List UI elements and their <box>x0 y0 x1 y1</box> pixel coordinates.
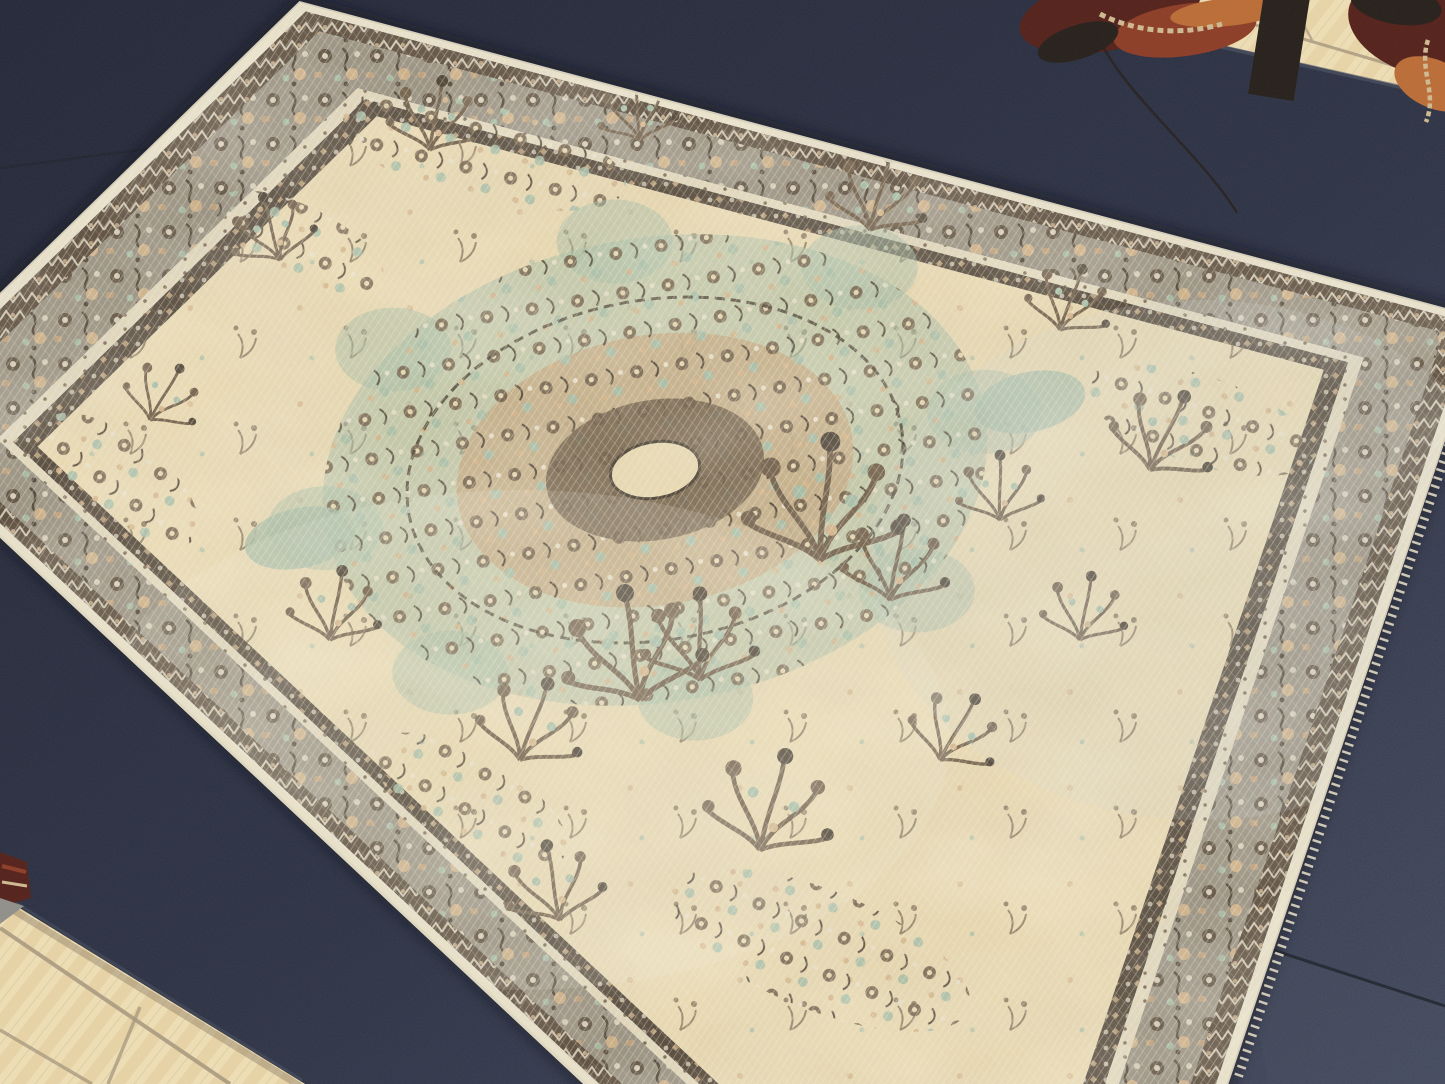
photo-stage <box>0 0 1445 1084</box>
photo-grain <box>0 0 1445 1084</box>
scene-photo <box>0 0 1445 1084</box>
